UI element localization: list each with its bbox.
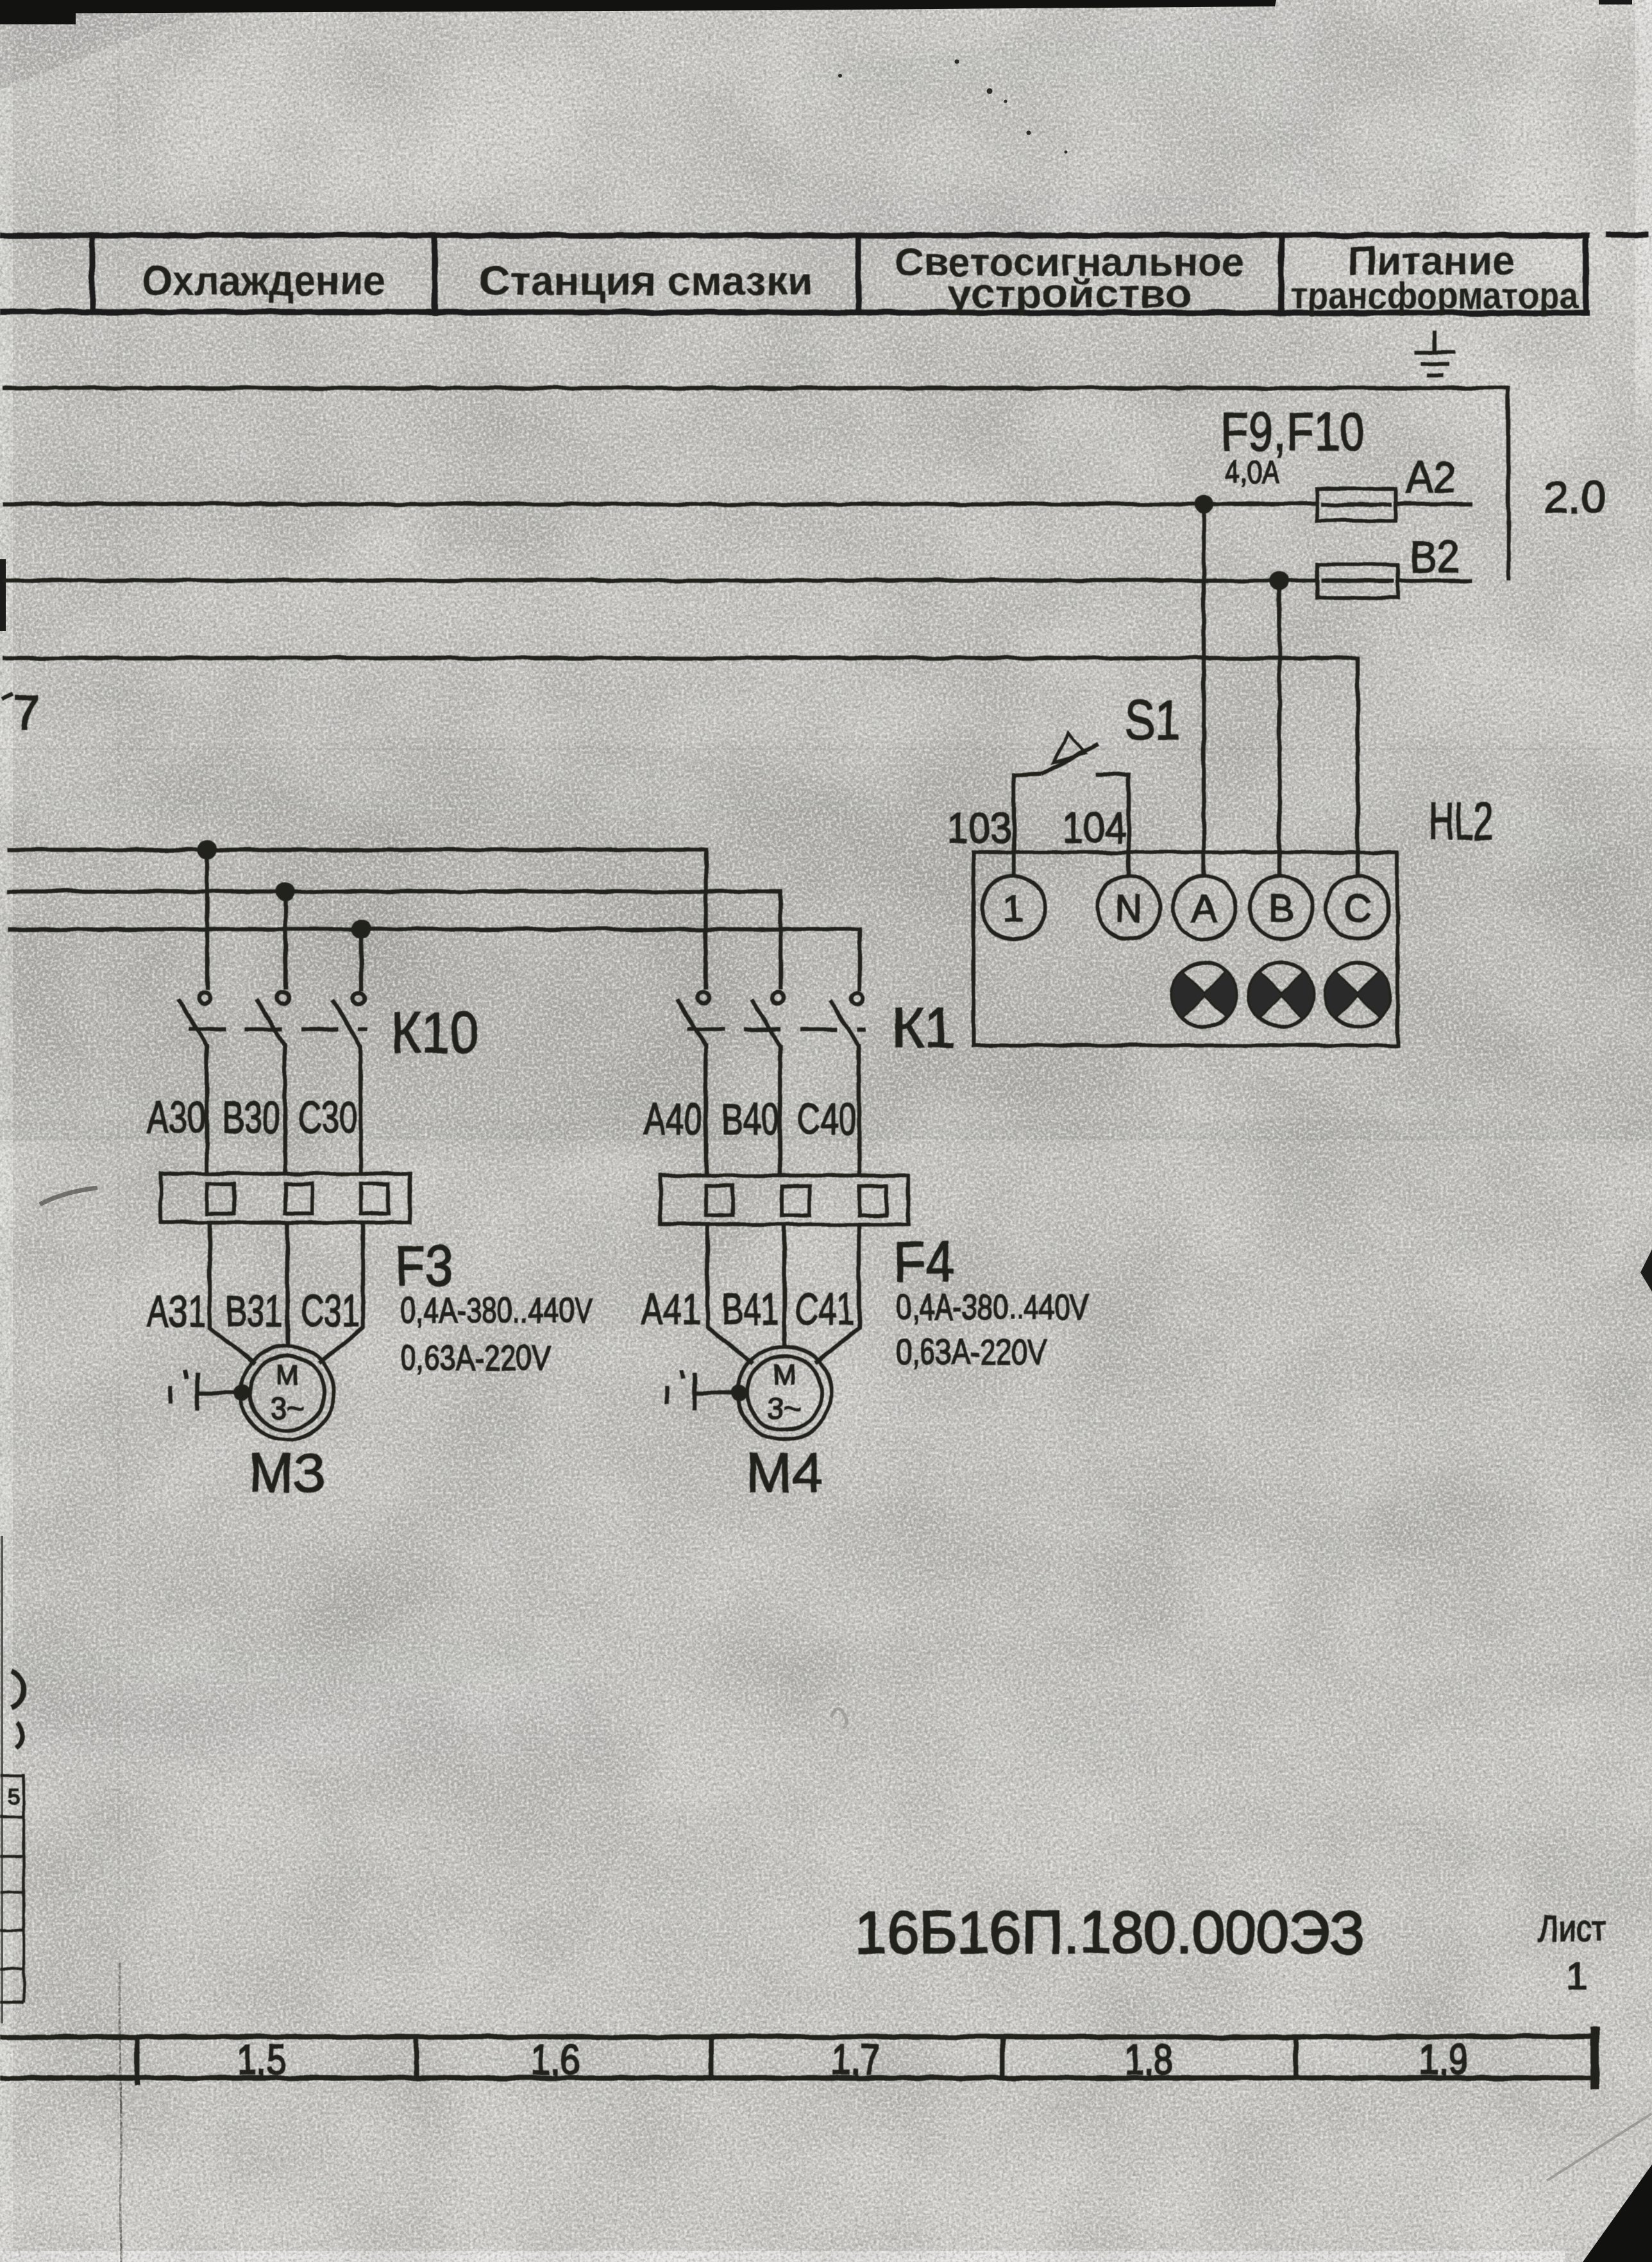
svg-text:16Б16П.180.000ЭЗ: 16Б16П.180.000ЭЗ (855, 1898, 1365, 1966)
svg-text:А40: А40 (643, 1094, 702, 1144)
svg-text:F3: F3 (395, 1234, 453, 1297)
svg-text:М: М (773, 1359, 796, 1390)
svg-text:0,4A-380..440V: 0,4A-380..440V (400, 1290, 593, 1330)
svg-text:В: В (1268, 887, 1294, 930)
svg-text:1,9: 1,9 (1419, 2036, 1468, 2083)
svg-text:А2: А2 (1406, 452, 1456, 502)
svg-text:С40: С40 (797, 1094, 856, 1144)
svg-text:устройство: устройство (948, 272, 1192, 316)
svg-text:А41: А41 (641, 1284, 700, 1334)
svg-text:5: 5 (8, 1785, 20, 1809)
svg-text:А30: А30 (147, 1092, 206, 1142)
svg-text:В2: В2 (1410, 532, 1460, 582)
svg-text:С31: С31 (301, 1286, 360, 1336)
svg-text:1: 1 (1566, 1954, 1588, 1998)
svg-text:HL2: HL2 (1429, 792, 1493, 850)
svg-text:103: 103 (947, 804, 1011, 852)
svg-text:В40: В40 (721, 1094, 779, 1144)
svg-text:М4: М4 (746, 1442, 823, 1504)
svg-text:А31: А31 (147, 1286, 206, 1336)
svg-text:трансформатора: трансформатора (1290, 275, 1580, 317)
svg-text:F4: F4 (893, 1230, 954, 1294)
svg-text:4,0А: 4,0А (1225, 454, 1280, 490)
svg-text:В30: В30 (223, 1092, 280, 1142)
svg-text:Лист: Лист (1538, 1908, 1606, 1948)
svg-text:3~: 3~ (271, 1392, 304, 1425)
svg-text:С30: С30 (298, 1092, 357, 1142)
svg-text:Станция смазки: Станция смазки (480, 258, 813, 304)
svg-text:0,63A-220V: 0,63A-220V (400, 1337, 552, 1378)
svg-text:В41: В41 (721, 1284, 779, 1334)
svg-text:С: С (1344, 887, 1371, 930)
svg-text:С41: С41 (795, 1284, 854, 1334)
svg-text:1: 1 (1002, 887, 1024, 930)
svg-text:1,6: 1,6 (531, 2036, 580, 2083)
svg-text:1,8: 1,8 (1124, 2036, 1173, 2083)
svg-text:104: 104 (1062, 804, 1126, 852)
svg-text:N: N (1115, 887, 1142, 930)
svg-text:Охлаждение: Охлаждение (142, 257, 385, 304)
svg-text:1,5: 1,5 (237, 2036, 286, 2083)
svg-text:К10: К10 (391, 1001, 478, 1065)
svg-text:3~: 3~ (768, 1392, 801, 1425)
svg-text:0,63A-220V: 0,63A-220V (896, 1331, 1047, 1372)
svg-text:S1: S1 (1124, 688, 1181, 752)
svg-text:0,4A-380..440V: 0,4A-380..440V (896, 1287, 1088, 1327)
svg-text:1,7: 1,7 (831, 2036, 880, 2083)
svg-text:F9,F10: F9,F10 (1220, 401, 1365, 462)
svg-text:2.0: 2.0 (1544, 472, 1606, 522)
svg-text:М: М (276, 1359, 299, 1390)
svg-text:МЗ: МЗ (249, 1442, 326, 1504)
svg-text:К1: К1 (891, 996, 956, 1059)
svg-text:В31: В31 (225, 1286, 283, 1336)
svg-text:А: А (1192, 887, 1217, 930)
svg-text:7: 7 (13, 686, 40, 740)
